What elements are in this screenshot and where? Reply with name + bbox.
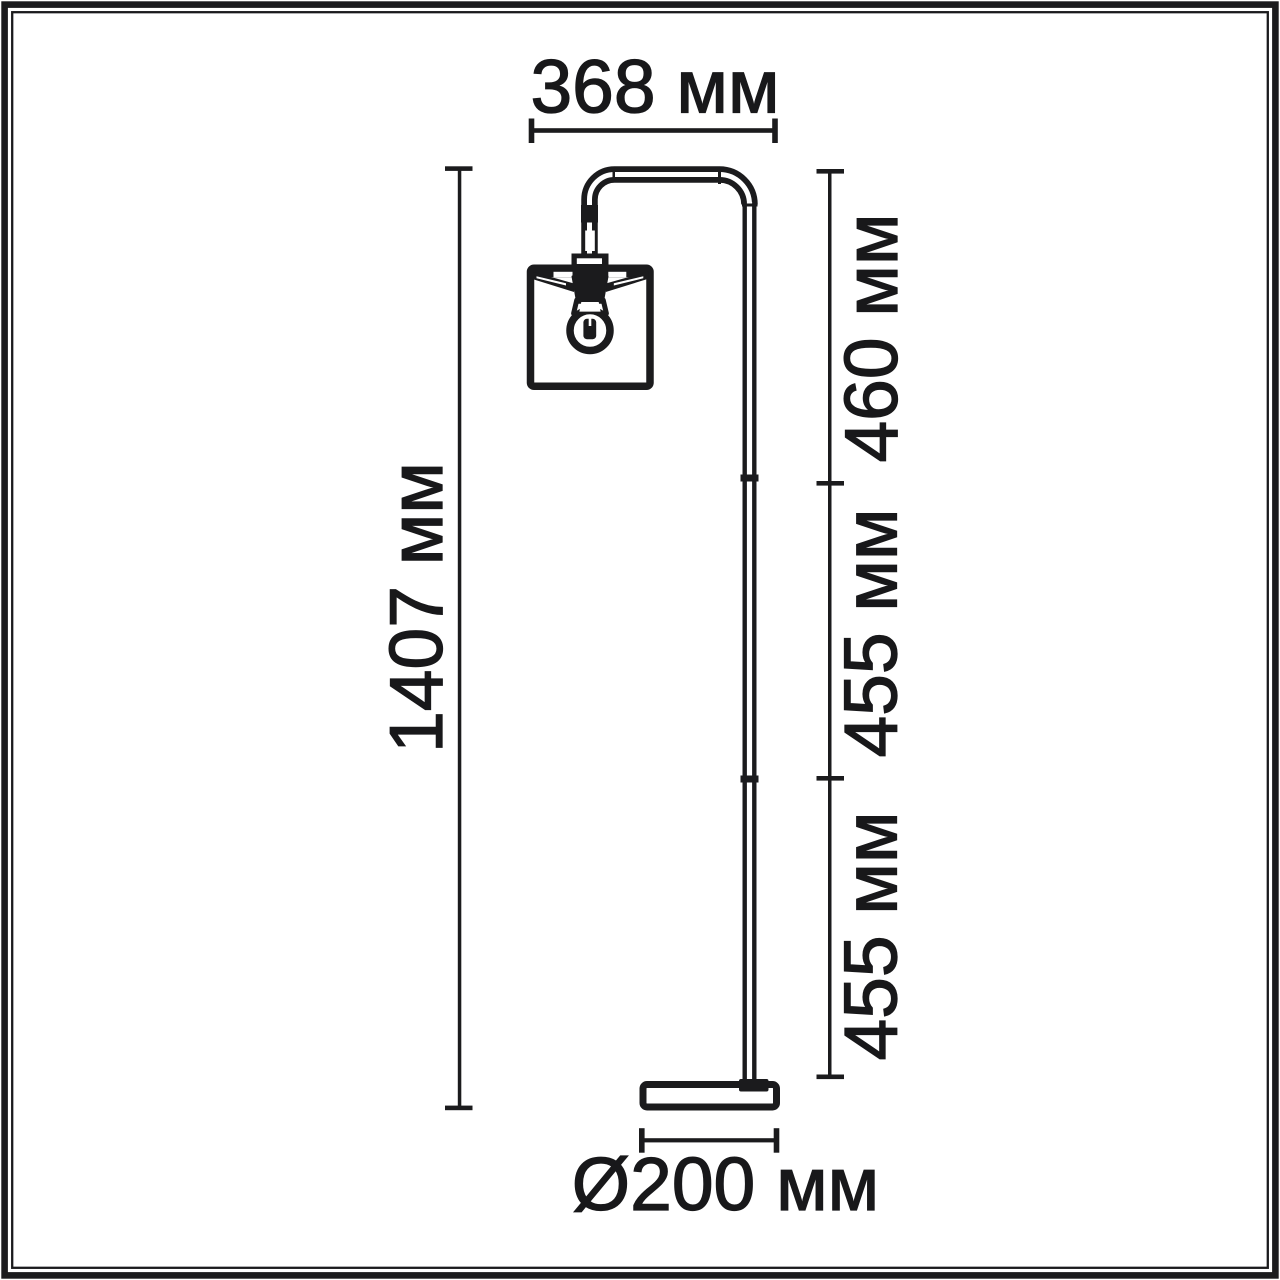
- svg-text:1407 мм: 1407 мм: [374, 462, 458, 753]
- svg-text:Ø200 мм: Ø200 мм: [572, 1142, 879, 1226]
- svg-text:368 мм: 368 мм: [530, 45, 779, 129]
- svg-text:460 мм: 460 мм: [829, 213, 913, 462]
- svg-text:455 мм: 455 мм: [829, 508, 913, 757]
- svg-text:455 мм: 455 мм: [829, 811, 913, 1060]
